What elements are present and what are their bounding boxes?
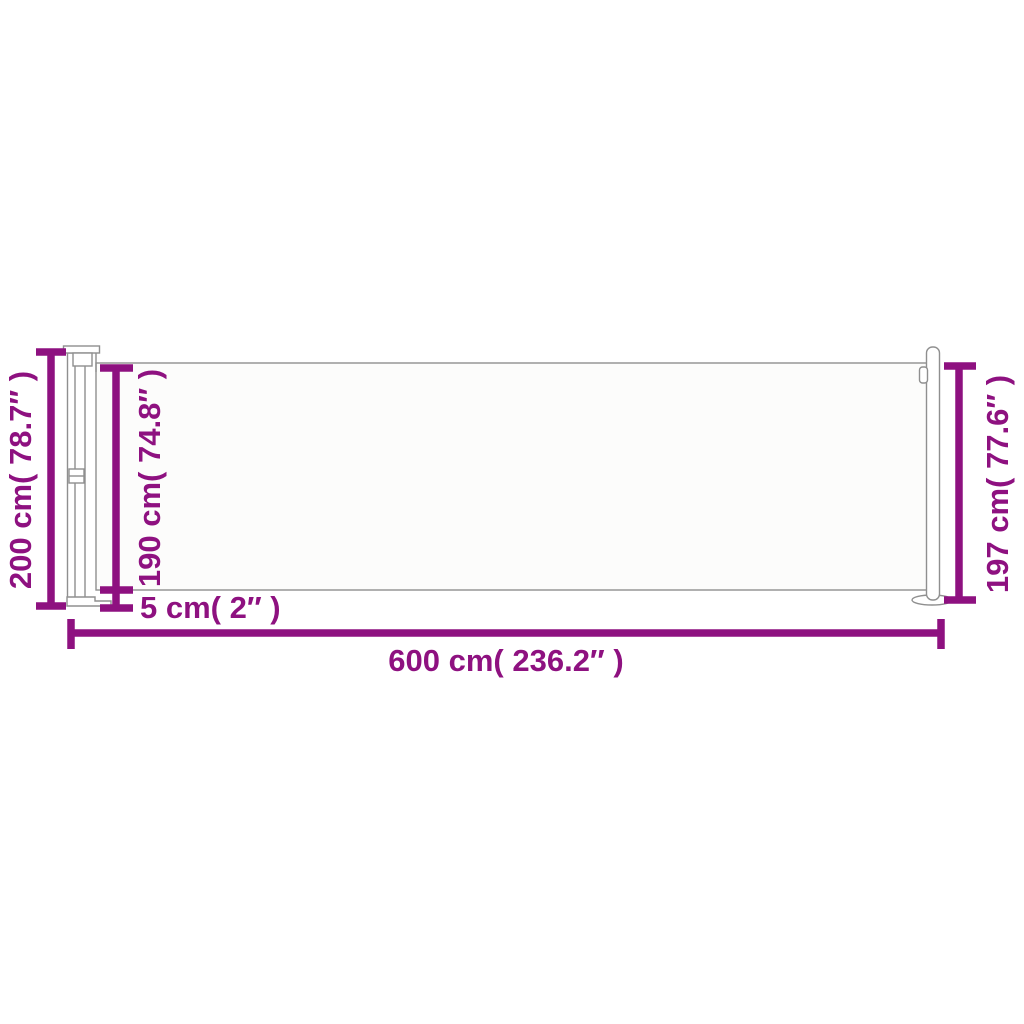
awning-fabric — [96, 363, 928, 590]
right-post-body — [927, 347, 940, 600]
dimension-label-197: 197 cm( 77.6″ ) — [980, 375, 1015, 593]
awning-structure — [64, 346, 953, 606]
dimension-height-total: 200 cm( 78.7″ ) — [3, 352, 66, 606]
dimension-label-5: 5 cm( 2″ ) — [140, 590, 281, 625]
right-post-clip — [920, 367, 928, 383]
dimension-height-right: 197 cm( 77.6″ ) — [944, 366, 1015, 600]
product-dimension-image: 200 cm( 78.7″ ) 190 cm( 74.8″ ) 5 cm( 2″… — [0, 0, 1024, 1024]
dimension-width-total: 600 cm( 236.2″ ) — [71, 619, 941, 678]
awning-dimension-diagram: 200 cm( 78.7″ ) 190 cm( 74.8″ ) 5 cm( 2″… — [0, 0, 1024, 1024]
dimension-line-200 — [36, 352, 66, 606]
dimension-ground-gap: 5 cm( 2″ ) — [100, 590, 281, 625]
dimension-label-190: 190 cm( 74.8″ ) — [132, 369, 167, 587]
dimension-label-600: 600 cm( 236.2″ ) — [388, 643, 623, 678]
left-post-cap-bracket — [73, 353, 92, 366]
dimension-line-197 — [944, 366, 976, 600]
dimension-label-200: 200 cm( 78.7″ ) — [3, 371, 38, 589]
left-post-top-cap — [64, 346, 100, 353]
